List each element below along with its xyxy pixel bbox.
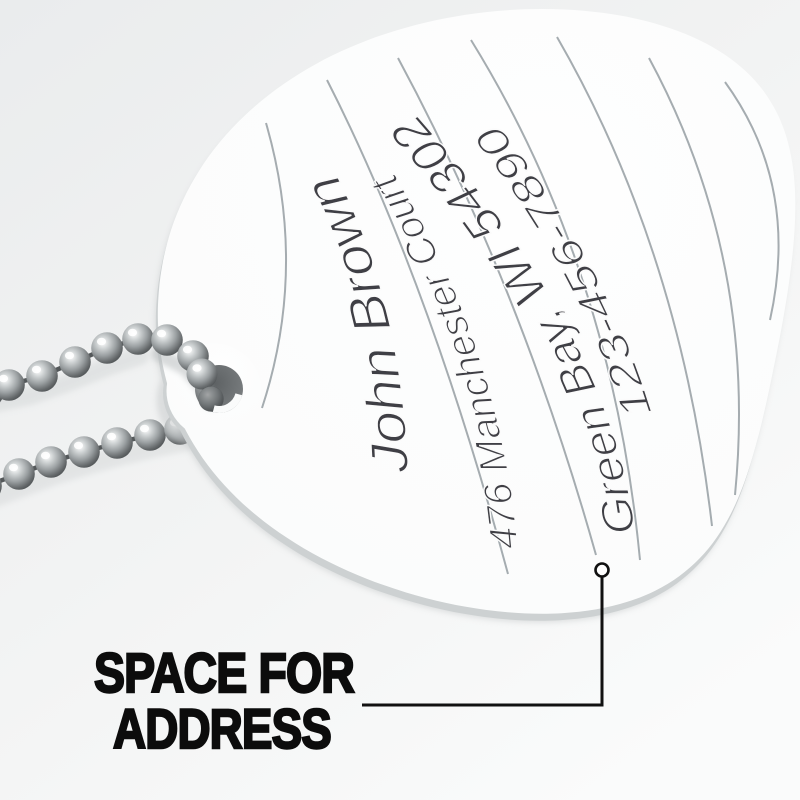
- svg-text:SPACE FOR: SPACE FOR: [94, 641, 354, 704]
- svg-text:ADDRESS: ADDRESS: [113, 697, 331, 760]
